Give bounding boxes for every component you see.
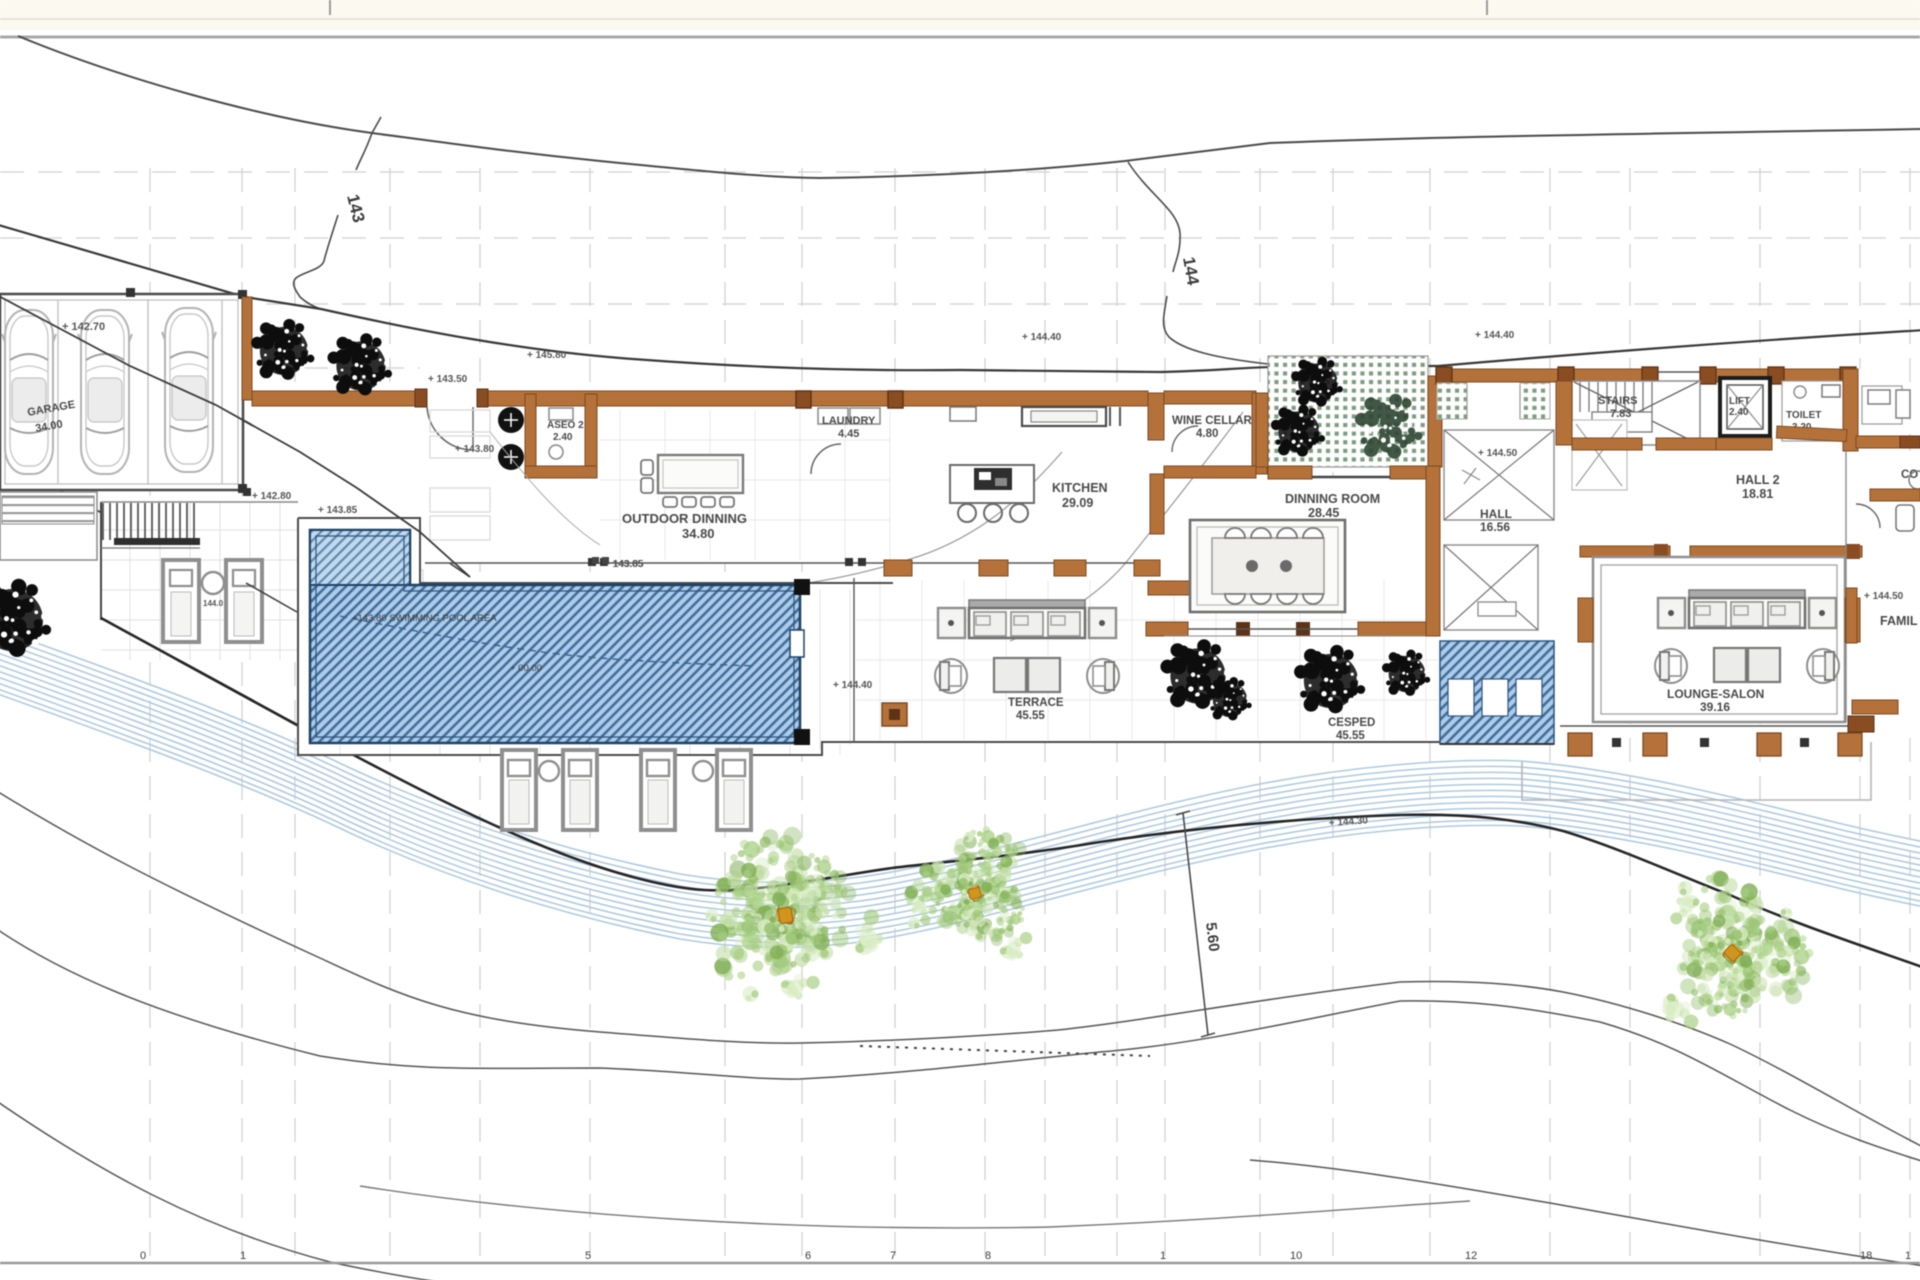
svg-text:5.60: 5.60	[1202, 921, 1222, 952]
svg-text:2.40: 2.40	[1729, 407, 1749, 418]
svg-text:+ 143.50: + 143.50	[428, 374, 468, 385]
svg-text:+ 144.40: + 144.40	[1022, 332, 1062, 343]
svg-text:18.81: 18.81	[1742, 487, 1773, 501]
svg-text:CESPED: CESPED	[1328, 717, 1375, 729]
svg-text:1: 1	[1160, 1250, 1166, 1262]
svg-text:+ 142.70: + 142.70	[62, 321, 105, 333]
svg-text:4.80: 4.80	[1196, 428, 1218, 440]
svg-text:+ 143.85: + 143.85	[318, 505, 358, 516]
svg-text:+ 144.40: + 144.40	[1475, 330, 1515, 341]
svg-text:143.85: 143.85	[613, 559, 644, 570]
svg-text:TOILET: TOILET	[1786, 410, 1821, 421]
svg-text:29.09: 29.09	[1062, 496, 1093, 510]
svg-text:KITCHEN: KITCHEN	[1052, 481, 1108, 495]
svg-text:34.80: 34.80	[682, 526, 715, 541]
svg-text:STAIRS: STAIRS	[1598, 395, 1638, 407]
svg-text:+143.80 SWIMMING POOL AREA: +143.80 SWIMMING POOL AREA	[352, 613, 497, 624]
svg-text:OUTDOOR DINNING: OUTDOOR DINNING	[622, 511, 747, 526]
svg-text:+ 00.00: + 00.00	[510, 663, 542, 674]
svg-text:5: 5	[585, 1250, 591, 1262]
svg-text:WINE CELLAR: WINE CELLAR	[1172, 415, 1253, 427]
svg-text:1: 1	[240, 1250, 246, 1262]
svg-text:144.0: 144.0	[203, 599, 224, 608]
svg-text:1: 1	[1905, 1250, 1911, 1262]
svg-text:0: 0	[140, 1250, 146, 1262]
svg-text:45.55: 45.55	[1016, 710, 1045, 722]
svg-text:7: 7	[890, 1250, 896, 1262]
svg-text:16.56: 16.56	[1480, 520, 1510, 534]
svg-text:ASEO 2: ASEO 2	[547, 420, 584, 431]
svg-text:28.45: 28.45	[1308, 506, 1339, 520]
svg-text:39.16: 39.16	[1700, 700, 1730, 714]
svg-text:+ 143.80: + 143.80	[455, 444, 495, 455]
svg-text:6: 6	[805, 1250, 811, 1262]
svg-text:TERRACE: TERRACE	[1008, 697, 1064, 709]
svg-text:FAMIL: FAMIL	[1880, 614, 1918, 628]
svg-text:12: 12	[1465, 1250, 1477, 1262]
svg-text:+ 144.50: + 144.50	[1864, 591, 1904, 602]
svg-text:LAUNDRY: LAUNDRY	[822, 415, 876, 427]
svg-text:HALL 2: HALL 2	[1736, 473, 1780, 487]
svg-text:2.40: 2.40	[553, 432, 573, 443]
svg-text:+ 144.50: + 144.50	[1478, 448, 1518, 459]
svg-text:LIFT: LIFT	[1729, 396, 1750, 407]
svg-text:LOUNGE-SALON: LOUNGE-SALON	[1667, 687, 1764, 701]
svg-text:45.55: 45.55	[1336, 730, 1365, 742]
svg-text:10: 10	[1290, 1250, 1302, 1262]
svg-text:18: 18	[1860, 1250, 1872, 1262]
svg-text:+ 145.80: + 145.80	[527, 350, 567, 361]
svg-text:DINNING ROOM: DINNING ROOM	[1285, 492, 1380, 506]
svg-text:+ 144.40: + 144.40	[833, 680, 873, 691]
svg-text:8: 8	[985, 1250, 991, 1262]
svg-text:+ 142.80: + 142.80	[252, 491, 292, 502]
svg-text:HALL: HALL	[1480, 507, 1512, 521]
svg-text:4.45: 4.45	[838, 428, 859, 440]
svg-text:7.83: 7.83	[1610, 408, 1631, 420]
